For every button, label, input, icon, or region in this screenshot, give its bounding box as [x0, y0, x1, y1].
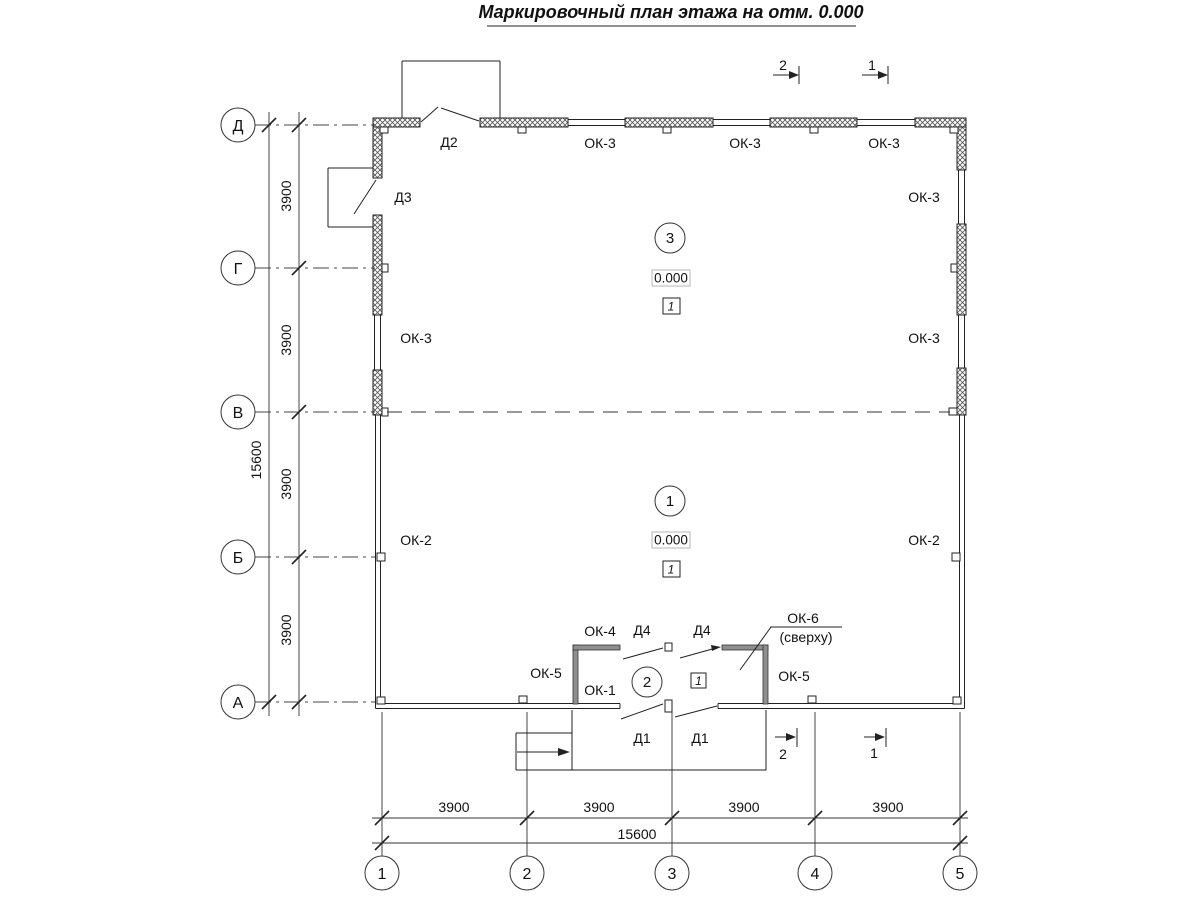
room-3-elevation: 0.000	[654, 271, 688, 286]
door-d1-swings	[621, 700, 717, 719]
pilasters	[377, 127, 961, 704]
door-d3-swing	[354, 180, 376, 214]
window-label-ok3-left: ОК-3	[400, 330, 432, 346]
axis-col-label-5: 5	[956, 866, 965, 883]
window-label-ok1: ОК-1	[584, 682, 616, 698]
dim-bay-bottom-3: 3900	[728, 799, 759, 815]
door-label-d1-left: Д1	[633, 730, 650, 746]
axis-col-marker-1: 1	[365, 856, 399, 890]
floor-plan: Маркировочный план этажа на отм. 0.000 3…	[0, 0, 1200, 900]
dim-bay-bottom-1: 3900	[438, 799, 469, 815]
window-label-ok6-note: (сверху)	[779, 629, 832, 645]
section-2-top-label: 2	[779, 57, 787, 73]
section-1-bottom-label: 1	[870, 745, 878, 761]
axis-row-marker-d: Д	[221, 108, 255, 142]
room-1-number: 1	[666, 493, 674, 510]
section-mark-2-bottom: 2	[775, 728, 797, 762]
column-extension-lines	[382, 712, 960, 856]
row-axis-lines	[255, 125, 375, 702]
axis-row-marker-a: А	[221, 685, 255, 719]
dim-bay-bottom-2: 3900	[583, 799, 614, 815]
room-2-floor-type: 1	[695, 674, 702, 688]
axis-col-label-2: 2	[523, 866, 532, 883]
axis-col-marker-2: 2	[510, 856, 544, 890]
page-title: Маркировочный план этажа на отм. 0.000	[478, 2, 863, 22]
axis-row-label-v: В	[233, 405, 244, 422]
room-2-marker: 2 1	[632, 667, 706, 697]
dim-bay-left-1: 3900	[278, 180, 294, 211]
axis-row-marker-g: Г	[221, 251, 255, 285]
window-label-ok3-top2: ОК-3	[729, 135, 761, 151]
axis-row-label-g: Г	[234, 261, 243, 278]
room-3-marker: 3 0.000 1	[652, 223, 690, 314]
dim-bay-left-4: 3900	[278, 614, 294, 645]
room-1-marker: 1 0.000 1	[652, 486, 690, 577]
bottom-dimension-lines	[372, 811, 968, 850]
room-3-floor-type: 1	[668, 300, 675, 314]
axis-col-label-1: 1	[378, 866, 387, 883]
section-mark-1-bottom: 1	[864, 728, 886, 761]
window-label-ok4: ОК-4	[584, 623, 616, 639]
exterior-walls-hatched	[373, 118, 966, 415]
axis-col-marker-5: 5	[943, 856, 977, 890]
axis-col-label-4: 4	[811, 866, 820, 883]
window-label-ok6: ОК-6	[787, 610, 819, 626]
door-label-d4-right: Д4	[693, 622, 710, 638]
window-label-ok3-top3: ОК-3	[868, 135, 900, 151]
section-1-top-label: 1	[868, 57, 876, 73]
dim-total-left: 15600	[248, 440, 264, 479]
door-d2-swing	[421, 107, 479, 122]
steps-direction-arrow	[558, 748, 570, 756]
axis-row-label-b: Б	[233, 550, 244, 567]
left-niche-outline	[328, 168, 373, 227]
window-label-ok5-left: ОК-5	[530, 665, 562, 681]
floor-plan-svg: Маркировочный план этажа на отм. 0.000 3…	[0, 0, 1200, 900]
room-1-elevation: 0.000	[654, 533, 688, 548]
window-label-ok2-right: ОК-2	[908, 532, 940, 548]
dim-bay-left-2: 3900	[278, 324, 294, 355]
dim-bay-left-3: 3900	[278, 468, 294, 499]
dim-total-bottom: 15600	[618, 826, 657, 842]
window-label-ok2-left: ОК-2	[400, 532, 432, 548]
room-2-number: 2	[643, 674, 651, 691]
room-3-number: 3	[666, 230, 674, 247]
section-2-bottom-label: 2	[779, 746, 787, 762]
section-mark-1-top: 1	[862, 57, 888, 84]
axis-row-label-a: А	[233, 695, 244, 712]
door-label-d1-right: Д1	[691, 730, 708, 746]
window-callout-ok6: ОК-6 (сверху)	[740, 610, 842, 670]
window-label-ok5-right: ОК-5	[778, 668, 810, 684]
axis-row-marker-b: Б	[221, 540, 255, 574]
axis-col-label-3: 3	[668, 866, 677, 883]
door-label-d4-left: Д4	[633, 622, 650, 638]
door-label-d2: Д2	[440, 134, 457, 150]
window-label-ok3-top1: ОК-3	[584, 135, 616, 151]
window-label-ok3-right1: ОК-3	[908, 189, 940, 205]
door-label-d3: Д3	[394, 189, 411, 205]
porch-outline	[572, 710, 766, 770]
axis-row-label-d: Д	[233, 118, 244, 135]
axis-col-marker-3: 3	[655, 856, 689, 890]
door-d4-swings	[623, 643, 721, 659]
axis-row-marker-v: В	[221, 395, 255, 429]
window-label-ok3-right2: ОК-3	[908, 330, 940, 346]
axis-col-marker-4: 4	[798, 856, 832, 890]
dim-bay-bottom-4: 3900	[872, 799, 903, 815]
entrance-steps	[516, 733, 572, 770]
top-vestibule-outline	[402, 61, 500, 118]
room-1-floor-type: 1	[668, 563, 675, 577]
section-mark-2-top: 2	[773, 57, 799, 84]
